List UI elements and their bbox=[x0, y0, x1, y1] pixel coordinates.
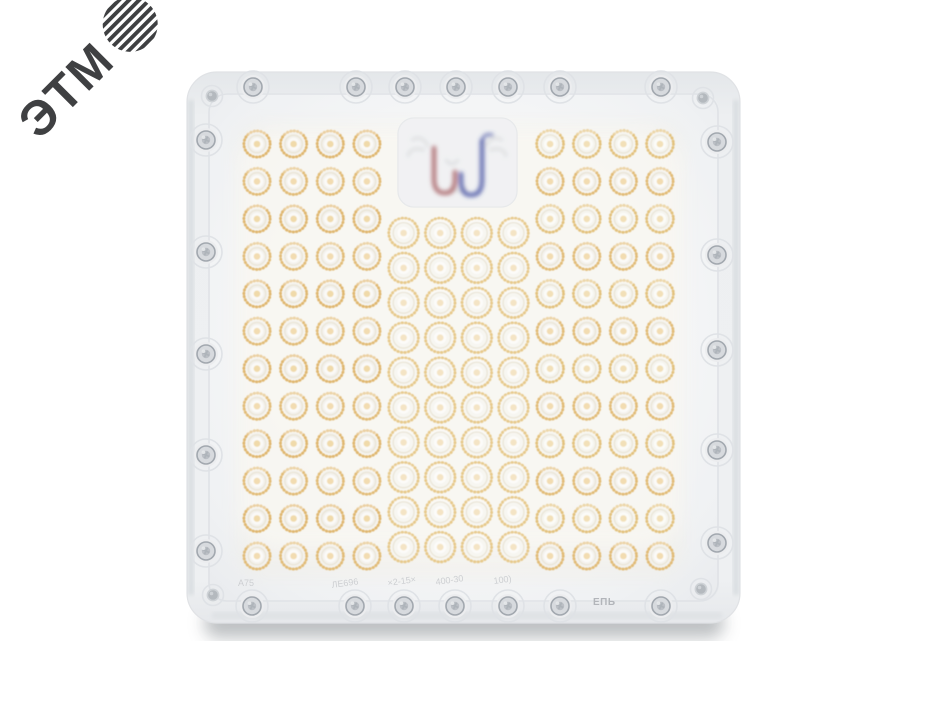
svg-text:А75: А75 bbox=[238, 578, 254, 588]
svg-text:ЕПЬ: ЕПЬ bbox=[593, 597, 616, 608]
